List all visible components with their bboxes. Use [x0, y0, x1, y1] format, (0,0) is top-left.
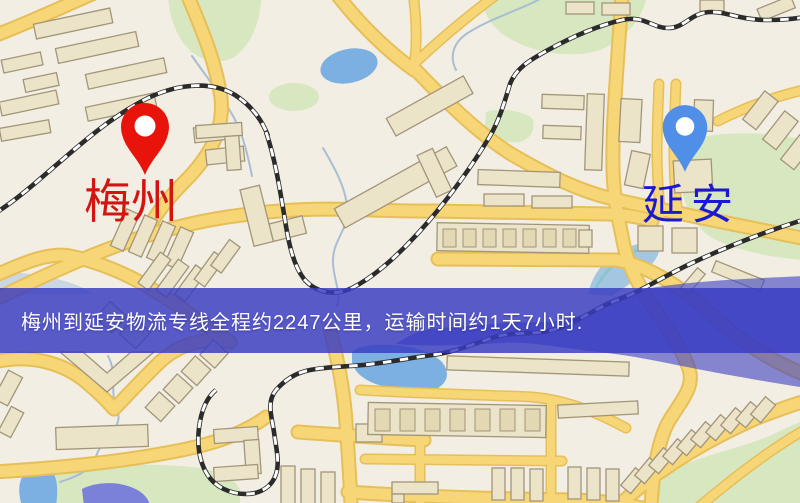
route-info-banner: 梅州到延安物流专线全程约2247公里，运输时间约1天7小时. — [0, 288, 800, 353]
destination-city-label: 延安 — [642, 184, 740, 226]
destination-pin-icon — [659, 103, 711, 179]
route-info-text: 梅州到延安物流专线全程约2247公里，运输时间约1天7小时. — [0, 306, 583, 335]
origin-pin-icon — [117, 101, 173, 182]
logistics-map: 梅州 延安 梅州到延安物流专线全程约2247公里，运输时间约1天7小时. — [0, 0, 800, 503]
map-canvas — [0, 0, 800, 503]
origin-city-label: 梅州 — [84, 178, 178, 225]
